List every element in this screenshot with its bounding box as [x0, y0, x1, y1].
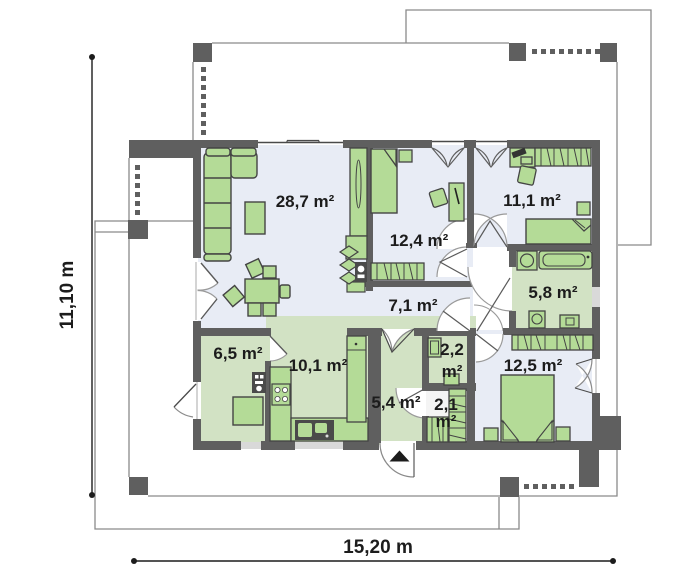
svg-text:11,1 m²: 11,1 m² [503, 191, 561, 210]
svg-text:m²: m² [442, 362, 463, 381]
svg-text:10,1 m²: 10,1 m² [289, 356, 348, 375]
svg-text:5,8 m²: 5,8 m² [528, 283, 577, 302]
svg-text:2,2: 2,2 [440, 340, 464, 359]
svg-text:5,4 m²: 5,4 m² [371, 393, 420, 412]
svg-text:12,5 m²: 12,5 m² [504, 356, 563, 375]
svg-text:m²: m² [436, 412, 457, 431]
svg-text:12,4 m²: 12,4 m² [390, 231, 449, 250]
svg-text:28,7 m²: 28,7 m² [276, 192, 335, 211]
svg-text:15,20 m: 15,20 m [343, 537, 413, 558]
svg-text:11,10 m: 11,10 m [57, 261, 78, 330]
svg-text:6,5 m²: 6,5 m² [213, 344, 262, 363]
svg-text:7,1 m²: 7,1 m² [388, 296, 437, 315]
